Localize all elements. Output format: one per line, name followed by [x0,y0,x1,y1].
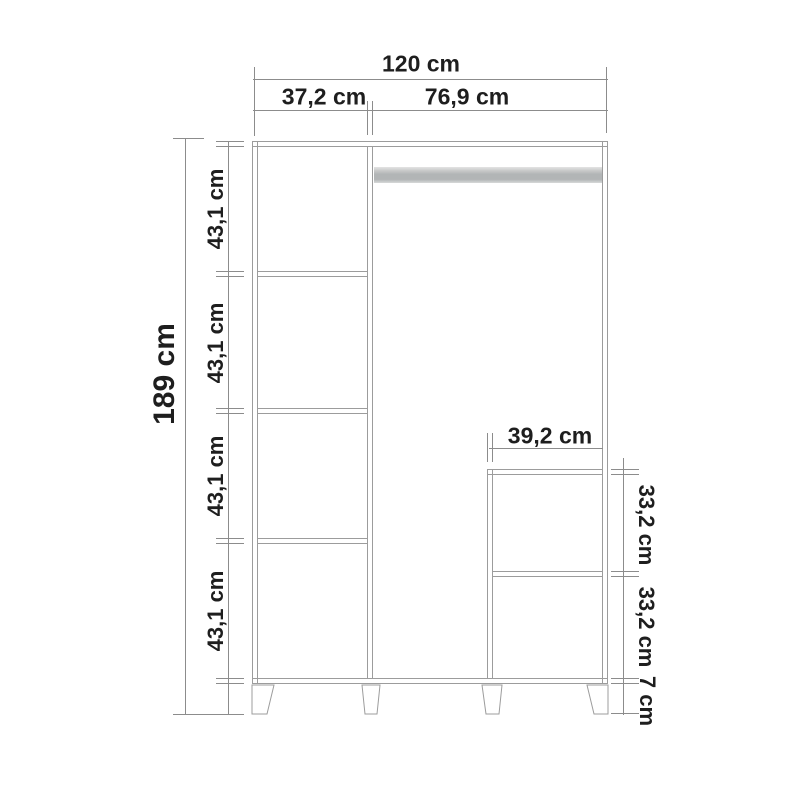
wardrobe-dimension-diagram: 120 cm 37,2 cm 76,9 cm 189 cm 43,1 cm 43… [0,0,800,800]
dim-tick [611,469,639,475]
overall-width-label: 120 cm [382,53,460,76]
dim-tick [173,714,244,715]
top-panel [252,141,608,147]
wardrobe-leg [252,685,274,714]
left-shelf-1 [258,271,367,277]
shelf-height-label: 43,1 cm [205,436,227,517]
extension-line [254,67,255,136]
inner-unit-shelf [493,571,603,577]
left-column-width-label: 37,2 cm [282,86,366,109]
shelf-height-label: 43,1 cm [205,303,227,384]
inner-unit-height-label: 33,2 cm [635,485,657,566]
dim-tick [173,138,204,139]
dim-line-split-width [253,110,608,111]
wardrobe-leg [482,685,502,714]
extension-line [606,67,607,133]
dim-tick [611,571,639,577]
left-shelf-3 [258,538,367,544]
inner-unit-top-panel [487,469,603,475]
shelf-height-label: 43,1 cm [205,169,227,250]
overall-height-label: 189 cm [150,323,180,425]
dim-line-overall-width [253,79,608,80]
right-section-width-label: 76,9 cm [425,86,509,109]
dim-tick [216,538,244,544]
wardrobe-leg [587,685,608,714]
shelf-height-label: 43,1 cm [205,571,227,652]
dim-line-shelf-heights [228,141,229,714]
dim-line-inner-unit-heights [623,458,624,715]
right-side-panel [602,141,608,684]
dim-tick [216,141,244,147]
dim-line-overall-height [185,138,186,714]
inner-unit-height-label: 33,2 cm [635,587,657,668]
inner-unit-width-label: 39,2 cm [508,425,592,448]
dim-tick [216,271,244,277]
dim-tick [487,433,488,462]
dim-tick [372,101,373,135]
dim-tick [367,101,368,135]
center-divider-panel [367,146,373,678]
hanging-rail [374,167,602,183]
left-shelf-2 [258,408,367,414]
wardrobe-feet [250,684,610,716]
dim-tick [216,408,244,414]
dim-tick [492,433,493,462]
dim-tick [216,678,244,684]
wardrobe-leg [362,685,380,714]
leg-height-label: 7 cm [636,676,658,726]
